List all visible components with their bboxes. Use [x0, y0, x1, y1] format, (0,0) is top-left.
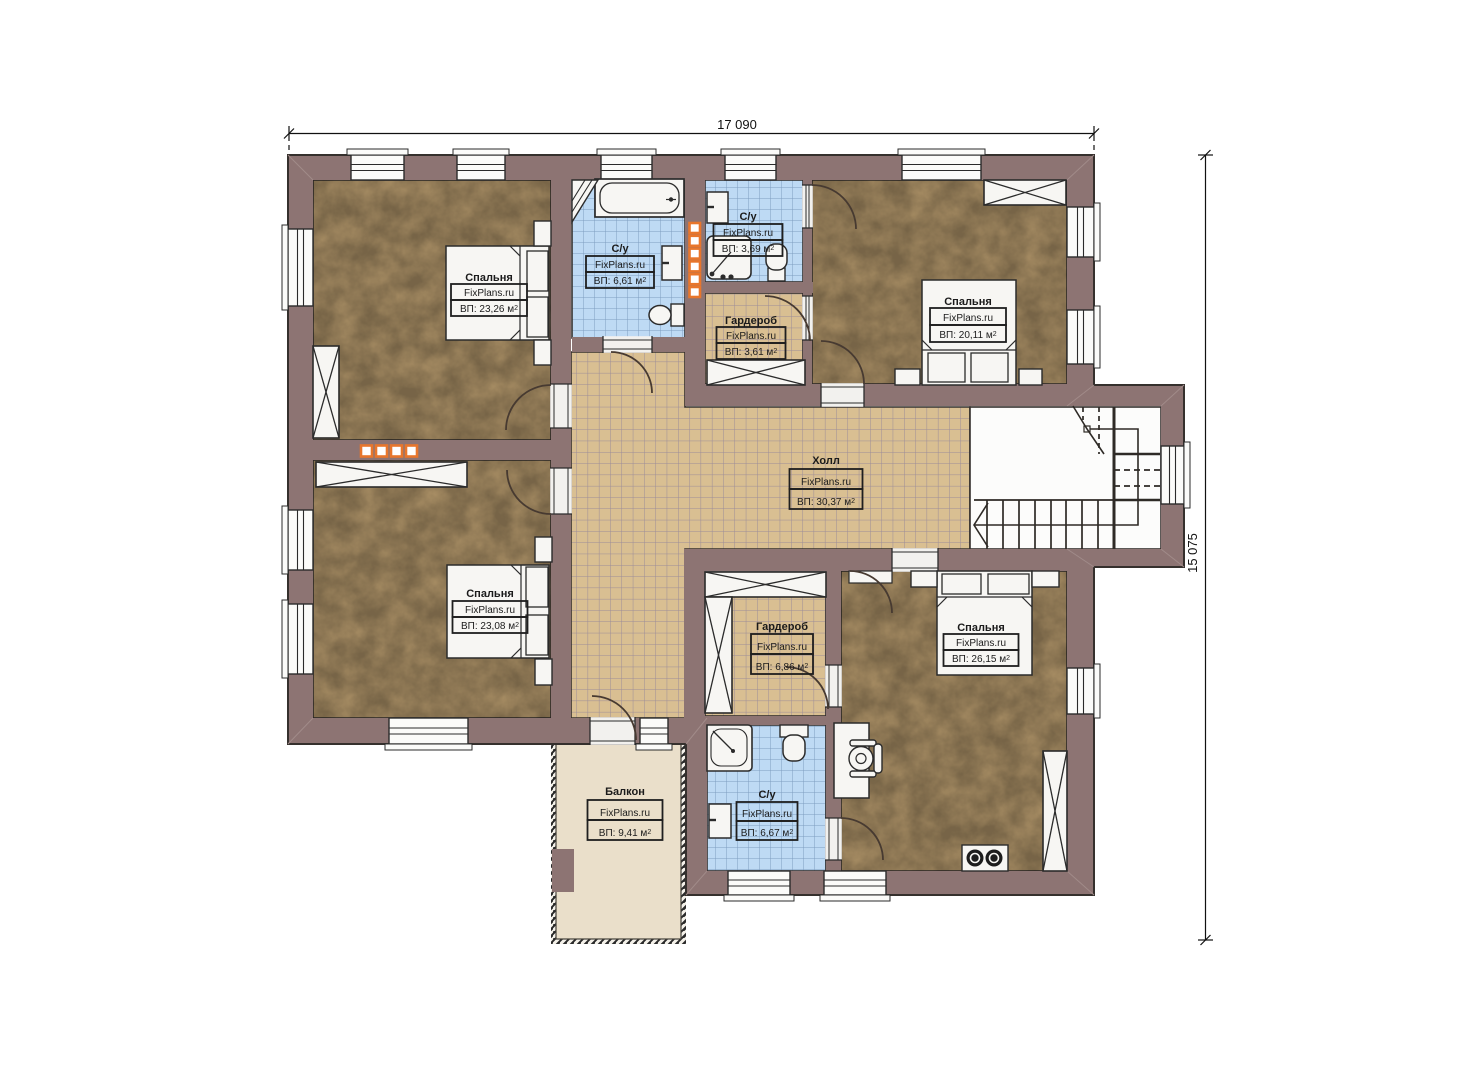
- svg-text:С/у: С/у: [611, 243, 629, 255]
- svg-text:15 075: 15 075: [1185, 533, 1200, 573]
- svg-text:ВП: 6,86 м2: ВП: 6,86 м2: [756, 662, 809, 673]
- svg-text:С/у: С/у: [739, 211, 757, 223]
- svg-text:ВП: 20,11 м2: ВП: 20,11 м2: [939, 330, 996, 341]
- svg-text:ВП: 3,69 м2: ВП: 3,69 м2: [722, 244, 775, 255]
- svg-text:Спальня: Спальня: [465, 272, 513, 284]
- svg-text:FixPlans.ru: FixPlans.ru: [956, 638, 1006, 649]
- svg-text:ВП: 3,61 м2: ВП: 3,61 м2: [725, 347, 778, 358]
- svg-text:FixPlans.ru: FixPlans.ru: [742, 809, 792, 820]
- svg-text:ВП: 6,67 м2: ВП: 6,67 м2: [741, 828, 794, 839]
- svg-text:FixPlans.ru: FixPlans.ru: [465, 605, 515, 616]
- svg-text:FixPlans.ru: FixPlans.ru: [943, 313, 993, 324]
- svg-text:FixPlans.ru: FixPlans.ru: [600, 808, 650, 819]
- svg-text:FixPlans.ru: FixPlans.ru: [757, 642, 807, 653]
- svg-text:FixPlans.ru: FixPlans.ru: [595, 260, 645, 271]
- svg-text:С/у: С/у: [758, 789, 776, 801]
- svg-text:FixPlans.ru: FixPlans.ru: [801, 477, 851, 488]
- svg-text:17 090: 17 090: [717, 117, 757, 132]
- svg-text:ВП: 23,26 м2: ВП: 23,26 м2: [460, 304, 518, 315]
- svg-text:FixPlans.ru: FixPlans.ru: [464, 288, 514, 299]
- svg-text:Спальня: Спальня: [957, 622, 1005, 634]
- svg-text:Спальня: Спальня: [466, 588, 514, 600]
- svg-text:Спальня: Спальня: [944, 296, 992, 308]
- svg-text:ВП: 23,08 м2: ВП: 23,08 м2: [461, 621, 519, 632]
- svg-text:ВП: 30,37 м2: ВП: 30,37 м2: [797, 497, 855, 508]
- svg-text:FixPlans.ru: FixPlans.ru: [723, 228, 773, 239]
- svg-text:Балкон: Балкон: [605, 786, 645, 798]
- svg-text:ВП: 6,61 м2: ВП: 6,61 м2: [594, 276, 647, 287]
- svg-text:ВП: 9,41 м2: ВП: 9,41 м2: [599, 828, 652, 839]
- svg-text:ВП: 26,15 м2: ВП: 26,15 м2: [952, 654, 1010, 665]
- svg-text:FixPlans.ru: FixPlans.ru: [726, 331, 776, 342]
- svg-text:Холл: Холл: [812, 455, 840, 467]
- svg-text:Гардероб: Гардероб: [756, 621, 808, 633]
- svg-text:Гардероб: Гардероб: [725, 315, 777, 327]
